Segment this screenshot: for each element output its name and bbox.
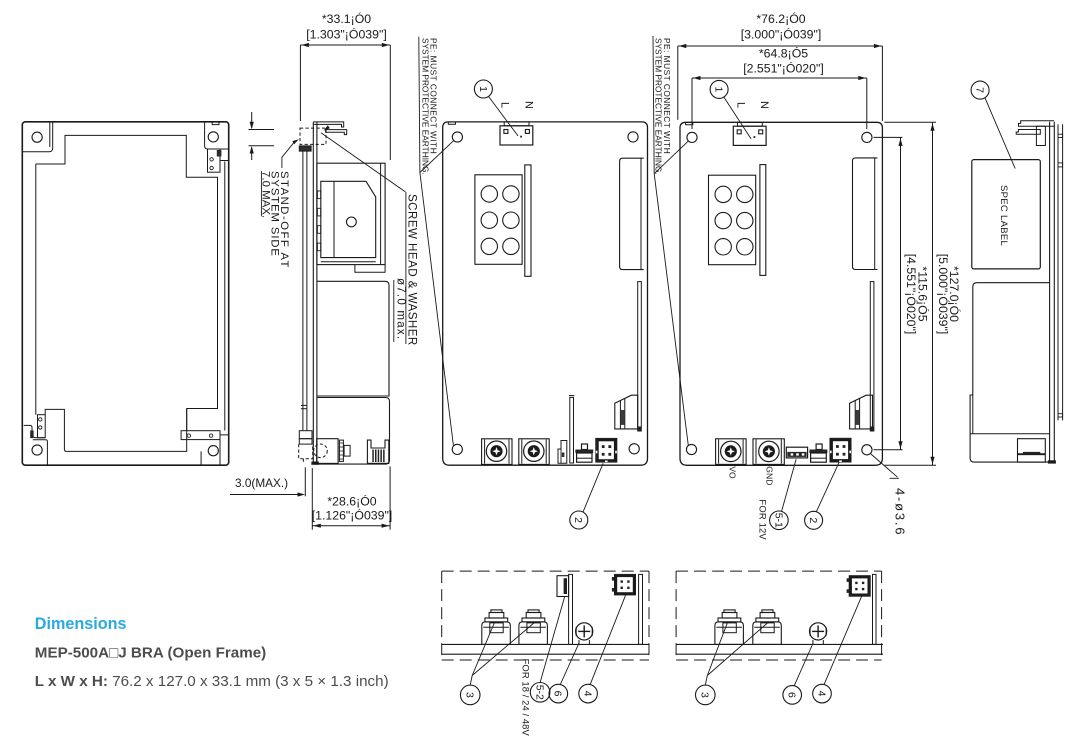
svg-text:L: L: [735, 102, 747, 108]
svg-text:4-ø3.6: 4-ø3.6: [893, 488, 908, 536]
svg-text:GND: GND: [764, 466, 774, 485]
svg-text:SYSTEM PROTECTIVE EARTHING.: SYSTEM PROTECTIVE EARTHING.: [420, 38, 430, 175]
svg-text:VO: VO: [727, 466, 737, 479]
svg-text:*76.2¡Ó0: *76.2¡Ó0: [756, 11, 805, 26]
svg-text:2: 2: [572, 517, 584, 523]
svg-text:SPEC LABEL: SPEC LABEL: [998, 185, 1009, 246]
svg-text:[1.303"¡Ó039"]: [1.303"¡Ó039"]: [306, 27, 387, 42]
svg-text:2: 2: [807, 517, 819, 523]
svg-text:[3.000"¡Ó039"]: [3.000"¡Ó039"]: [741, 27, 822, 42]
svg-text:L: L: [499, 102, 511, 108]
svg-text:FOR 18 / 24 / 48V: FOR 18 / 24 / 48V: [521, 659, 532, 737]
svg-text:MEP-500A□J BRA (Open Frame): MEP-500A□J BRA (Open Frame): [35, 645, 266, 662]
svg-text:1: 1: [713, 86, 725, 92]
svg-text:4: 4: [815, 691, 827, 697]
svg-text:*28.6¡Ó0: *28.6¡Ó0: [327, 494, 376, 509]
svg-text:4: 4: [582, 691, 594, 697]
svg-text:*33.1¡Ó0: *33.1¡Ó0: [322, 11, 371, 26]
svg-text:7: 7: [974, 87, 986, 93]
svg-text:5-2: 5-2: [534, 685, 546, 700]
svg-text:3.0(MAX.): 3.0(MAX.): [235, 476, 288, 490]
svg-text:1: 1: [477, 86, 489, 92]
svg-text:6: 6: [552, 691, 564, 697]
svg-text:Dimensions: Dimensions: [35, 615, 127, 633]
svg-text:[5.000"¡Ó039"]: [5.000"¡Ó039"]: [936, 254, 951, 335]
svg-text:5-1: 5-1: [772, 513, 784, 528]
svg-text:*64.8¡Ó5: *64.8¡Ó5: [759, 46, 808, 61]
svg-text:3: 3: [464, 692, 476, 698]
svg-text:[4.551"¡Ó020"]: [4.551"¡Ó020"]: [904, 254, 919, 335]
svg-text:FOR 12V: FOR 12V: [757, 499, 768, 540]
svg-text:[2.551"¡Ó020"]: [2.551"¡Ó020"]: [743, 60, 824, 75]
svg-text:[1.126"¡Ó039"]: [1.126"¡Ó039"]: [312, 508, 393, 523]
svg-text:3: 3: [699, 692, 711, 698]
svg-text:6: 6: [786, 692, 798, 698]
svg-text:L x W x H: 76.2 x 127.0 x 33.1: L x W x H: 76.2 x 127.0 x 33.1 mm (3 x 5…: [35, 673, 389, 690]
svg-text:N: N: [758, 101, 770, 109]
svg-text:N: N: [522, 101, 534, 109]
svg-text:SYSTEM PROTECTIVE EARTHING.: SYSTEM PROTECTIVE EARTHING.: [654, 38, 664, 175]
